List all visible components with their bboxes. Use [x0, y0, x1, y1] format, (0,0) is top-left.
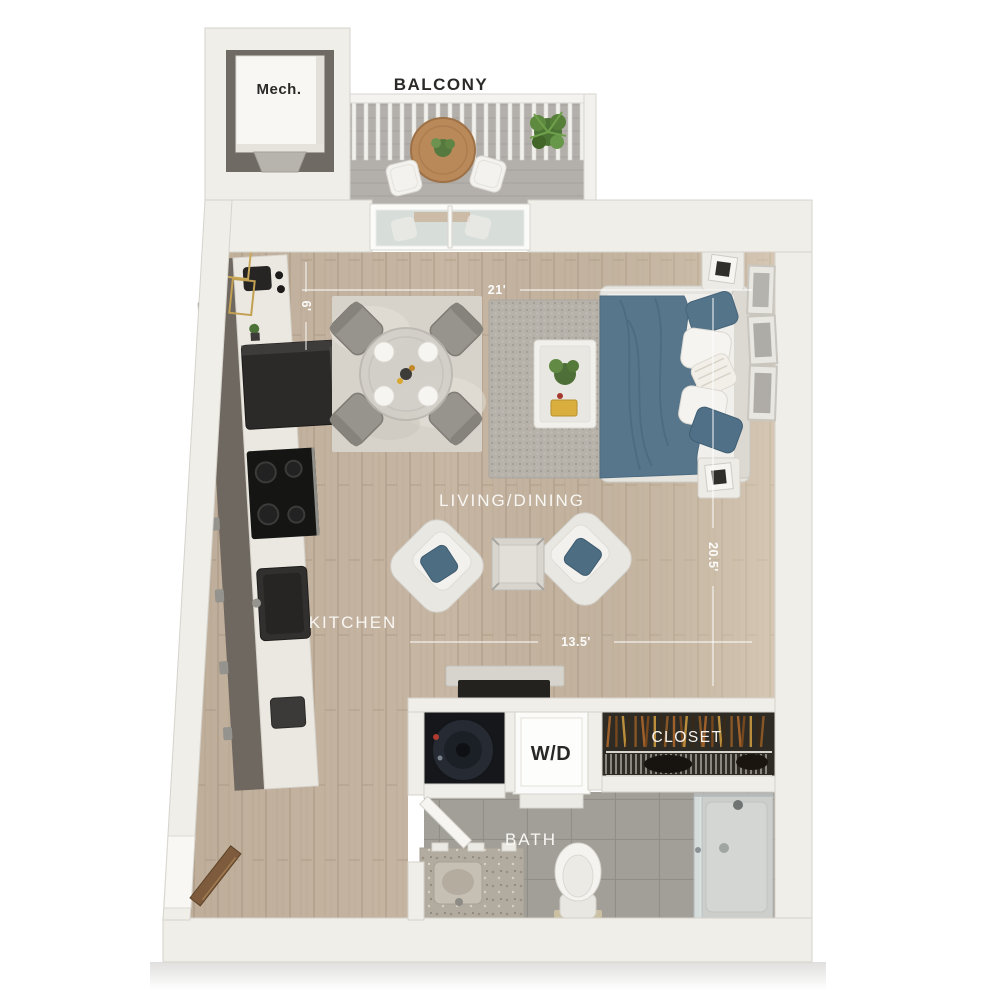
mech-unit-shade [316, 56, 324, 152]
side-table-top [499, 545, 537, 583]
nightstand-top [702, 250, 744, 290]
side-table [492, 538, 544, 590]
refrigerator [241, 340, 340, 429]
centerpiece-flower [397, 378, 403, 384]
water-heater-pipe [438, 756, 443, 761]
door-mullion [448, 206, 452, 248]
frame-art [752, 273, 769, 308]
room-label-bath: BATH [505, 830, 557, 849]
coffee-table-plant [549, 359, 563, 373]
closet-bin [736, 754, 768, 770]
place-setting [374, 342, 394, 362]
railing-bar [496, 103, 500, 160]
floor-plan-canvas: Mech. [0, 0, 1000, 1000]
sink-faucet [455, 898, 463, 906]
toilet [554, 843, 602, 918]
room-label-closet: CLOSET [651, 729, 722, 746]
glass-reflection-table [414, 212, 470, 222]
table-plant-leaf [445, 139, 455, 149]
mech-unit [236, 56, 324, 152]
shower-glass [694, 796, 702, 918]
railing-bar [580, 103, 584, 160]
vanity-edge [432, 843, 448, 851]
coffee-table [534, 340, 596, 428]
tv [458, 680, 550, 700]
railing-bar [568, 103, 572, 160]
utility-wall [408, 698, 775, 712]
bath-wall-upper [408, 712, 424, 795]
shower-frame [694, 793, 773, 797]
room-label-mech: Mech. [256, 81, 301, 98]
railing-bar [520, 103, 524, 160]
stove [247, 447, 320, 539]
lamp-shade [711, 469, 726, 484]
burner [258, 504, 279, 525]
dimension-text-side: 20.5' [706, 542, 720, 572]
balcony-railing-top [344, 94, 596, 103]
cabinet-handle [223, 727, 233, 741]
balcony-railing-post [584, 94, 596, 204]
mech-closet: Mech. [205, 28, 350, 205]
shower-drain [719, 843, 729, 853]
room-label-wd: W/D [531, 743, 571, 765]
vanity-sink [420, 843, 524, 920]
wall-shadow [150, 962, 826, 990]
toilet-seat [563, 855, 593, 897]
table-plant-leaf [431, 138, 441, 148]
water-heater-valve [433, 734, 439, 740]
room-label-living-dining: LIVING/DINING [439, 491, 585, 510]
railing-bar [376, 103, 380, 160]
place-setting [418, 386, 438, 406]
wd-closet-divider [588, 712, 602, 790]
bottom-wall [163, 918, 812, 962]
dimension-text-kitchen: 6' [299, 301, 313, 312]
railing-bar [400, 103, 404, 160]
centerpiece-flower [409, 365, 415, 371]
mech-duct [254, 152, 306, 172]
washer-dryer-front [520, 794, 583, 808]
coffee-table-plant [567, 360, 579, 372]
right-wall [775, 252, 812, 920]
nightstand-bottom [698, 458, 740, 498]
burner [285, 460, 302, 477]
top-wall-right [528, 200, 812, 252]
floor-plan-page: Mech. [0, 0, 1000, 1000]
heater-closet-front [424, 784, 505, 798]
lamp-shade [715, 261, 731, 277]
water-heater [432, 719, 494, 781]
frame-art [753, 323, 772, 358]
countertop-appliance [270, 696, 306, 728]
balcony-table [411, 118, 475, 182]
tray [551, 400, 577, 416]
heater-closet-wall [505, 712, 515, 792]
sliding-glass-door [370, 204, 530, 250]
closet-front-wall [602, 776, 775, 792]
railing-bar [364, 103, 368, 160]
railing-bar [484, 103, 488, 160]
place-setting [418, 342, 438, 362]
closet-bin [644, 755, 692, 773]
cabinet-handle [215, 589, 225, 603]
washer-dryer: W/D [513, 710, 590, 808]
wall-art [747, 266, 777, 421]
frame-art [753, 373, 771, 414]
burner [255, 462, 276, 483]
burner [288, 506, 305, 523]
sink-bowl [442, 869, 474, 895]
shower-base [706, 802, 767, 912]
bath-wall-lower [408, 862, 424, 920]
vanity-edge [468, 843, 484, 851]
room-label-kitchen: KITCHEN [309, 613, 398, 632]
cabinet-handle [219, 661, 229, 675]
railing-bar [508, 103, 512, 160]
dining-area [328, 296, 486, 452]
room-label-balcony: BALCONY [394, 75, 489, 94]
place-setting [374, 386, 394, 406]
shower [694, 793, 773, 918]
shower-handle [695, 847, 701, 853]
railing-bar [388, 103, 392, 160]
blanket [600, 296, 701, 478]
tray-decor [557, 393, 563, 399]
dimension-text-bottom: 13.5' [561, 635, 591, 649]
mech-unit-face [236, 144, 324, 152]
balcony [344, 94, 596, 205]
railing-bar [352, 103, 356, 160]
bed [600, 286, 750, 482]
dimension-text-top: 21' [488, 283, 506, 297]
shower-head [733, 800, 743, 810]
